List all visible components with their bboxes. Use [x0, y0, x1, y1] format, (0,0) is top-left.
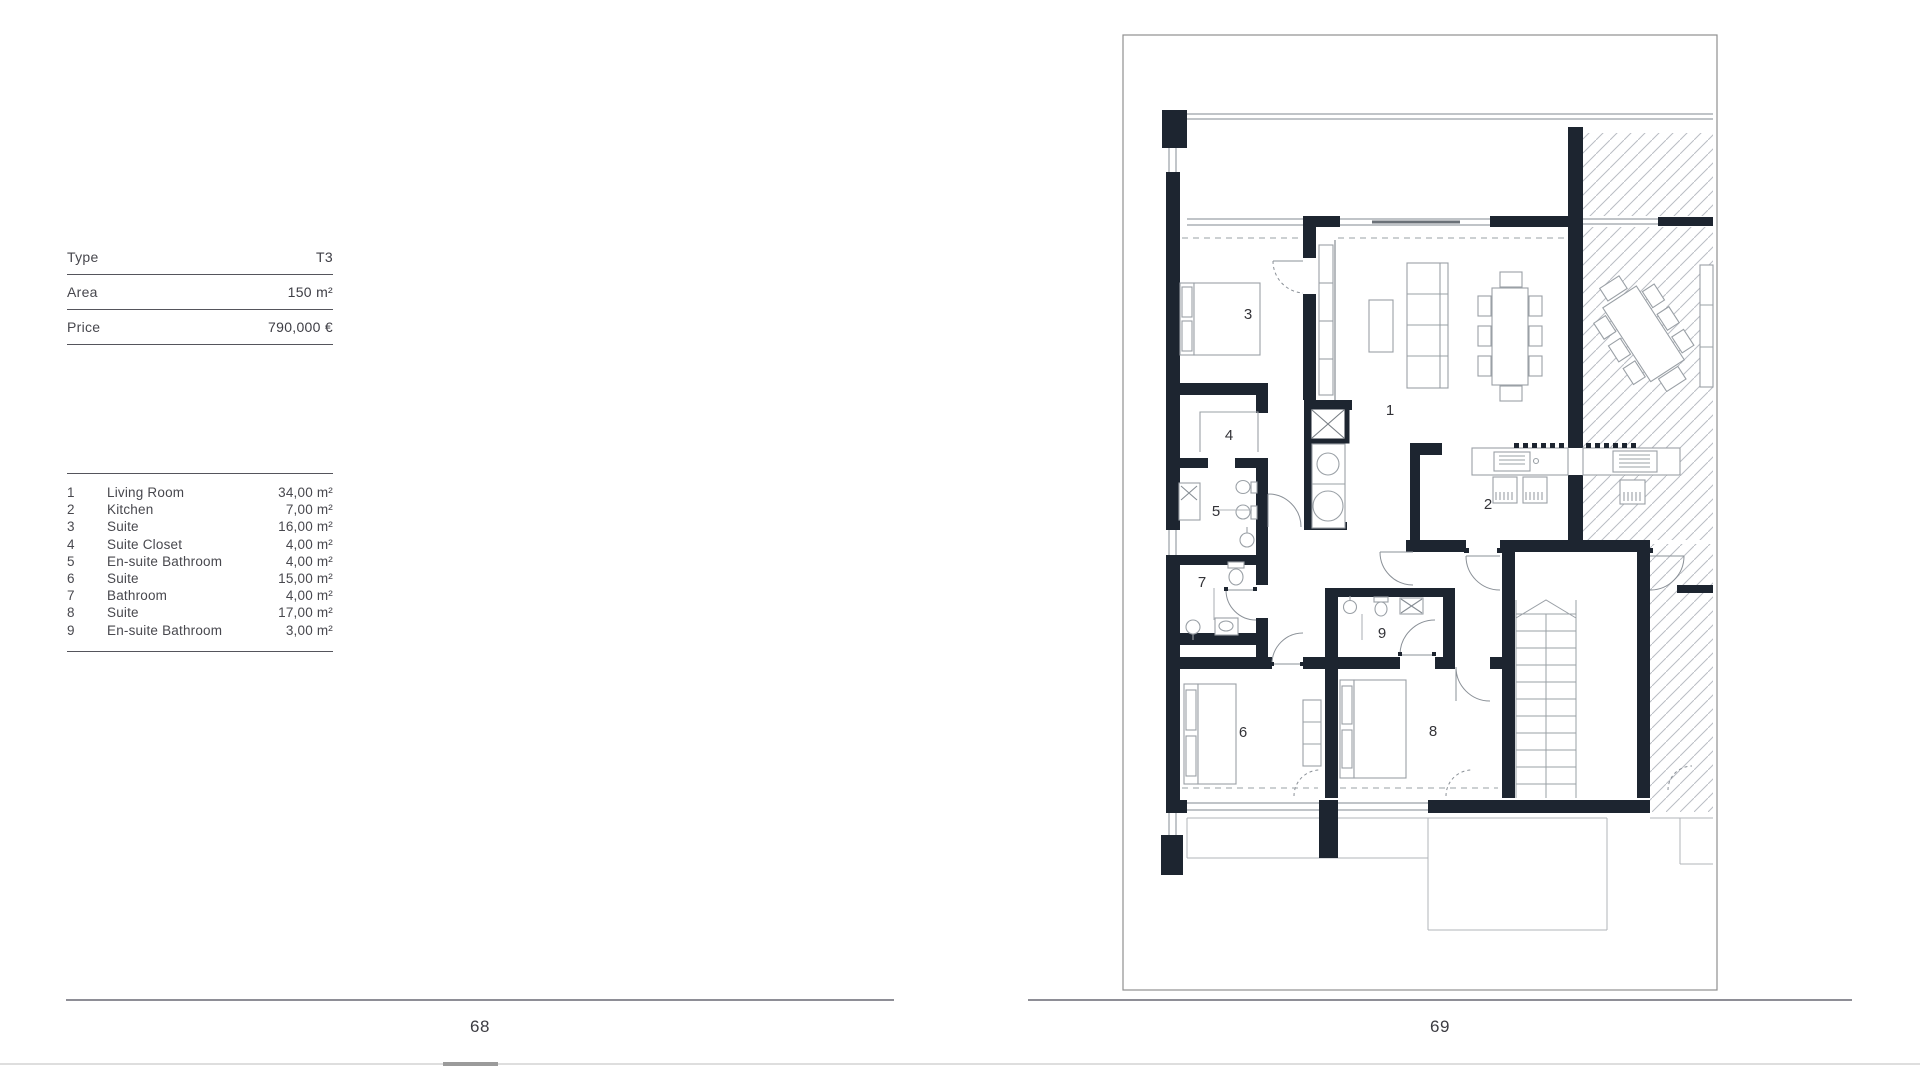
right-footer-rule	[1028, 999, 1852, 1001]
room-row: 2Kitchen7,00 m²	[67, 501, 333, 518]
room-row-number: 7	[67, 587, 107, 604]
room-row-area: 15,00 m²	[278, 570, 333, 587]
room-label-3: 3	[1244, 306, 1252, 323]
floor-plan: 123456789	[1122, 34, 1718, 991]
room-list: 1Living Room34,00 m²2Kitchen7,00 m²3Suit…	[67, 473, 333, 652]
spec-row: Price790,000 €	[67, 310, 333, 345]
room-label-6: 6	[1239, 724, 1247, 741]
room-row-name: Living Room	[107, 484, 278, 501]
spec-value: 790,000 €	[268, 319, 333, 335]
room-row-name: En-suite Bathroom	[107, 553, 286, 570]
room-row: 6Suite15,00 m²	[67, 570, 333, 587]
room-row-name: Suite Closet	[107, 536, 286, 553]
room-row-number: 3	[67, 518, 107, 535]
left-footer-rule	[66, 999, 894, 1001]
page-bottom-tick	[443, 1062, 498, 1066]
page-number-left: 68	[440, 1017, 520, 1037]
page-bottom-edge	[0, 1063, 1920, 1065]
room-row-number: 2	[67, 501, 107, 518]
room-row: 3Suite16,00 m²	[67, 518, 333, 535]
room-row-name: Suite	[107, 604, 278, 621]
room-label-4: 4	[1225, 427, 1233, 444]
spec-row: TypeT3	[67, 240, 333, 275]
room-row-area: 7,00 m²	[286, 501, 333, 518]
spec-label: Area	[67, 284, 98, 300]
room-label-5: 5	[1212, 503, 1220, 520]
room-row-area: 16,00 m²	[278, 518, 333, 535]
spec-table: TypeT3Area150 m²Price790,000 €	[67, 240, 333, 345]
room-label-9: 9	[1378, 625, 1386, 642]
page-number-right: 69	[1400, 1017, 1480, 1037]
room-row-name: Suite	[107, 570, 278, 587]
room-row: 7Bathroom4,00 m²	[67, 587, 333, 604]
room-row-number: 8	[67, 604, 107, 621]
room-row-number: 9	[67, 622, 107, 639]
room-row-number: 1	[67, 484, 107, 501]
room-label-1: 1	[1386, 402, 1394, 419]
room-row-number: 4	[67, 536, 107, 553]
room-row-area: 4,00 m²	[286, 536, 333, 553]
room-row-name: Suite	[107, 518, 278, 535]
spec-label: Type	[67, 249, 99, 265]
door-jambs	[1224, 548, 1653, 666]
room-row-name: Bathroom	[107, 587, 286, 604]
room-label-7: 7	[1198, 574, 1206, 591]
room-row-area: 3,00 m²	[286, 622, 333, 639]
room-row-name: En-suite Bathroom	[107, 622, 286, 639]
room-row: 9En-suite Bathroom3,00 m²	[67, 622, 333, 639]
room-row: 8Suite17,00 m²	[67, 604, 333, 621]
room-row-area: 34,00 m²	[278, 484, 333, 501]
stairs	[1516, 600, 1576, 798]
room-row: 5En-suite Bathroom4,00 m²	[67, 553, 333, 570]
lower-terrace-outline	[1187, 818, 1713, 930]
room-row-area: 4,00 m²	[286, 553, 333, 570]
spec-label: Price	[67, 319, 100, 335]
spec-value: 150 m²	[288, 284, 333, 300]
spec-value: T3	[316, 249, 333, 265]
room-row-area: 17,00 m²	[278, 604, 333, 621]
spec-row: Area150 m²	[67, 275, 333, 310]
room-row-number: 5	[67, 553, 107, 570]
room-label-8: 8	[1429, 723, 1437, 740]
room-row-name: Kitchen	[107, 501, 286, 518]
floor-plan-svg: 123456789	[1122, 34, 1718, 991]
room-row-area: 4,00 m²	[286, 587, 333, 604]
room-row-number: 6	[67, 570, 107, 587]
room-label-2: 2	[1484, 496, 1492, 513]
room-row: 1Living Room34,00 m²	[67, 484, 333, 501]
room-row: 4Suite Closet4,00 m²	[67, 536, 333, 553]
